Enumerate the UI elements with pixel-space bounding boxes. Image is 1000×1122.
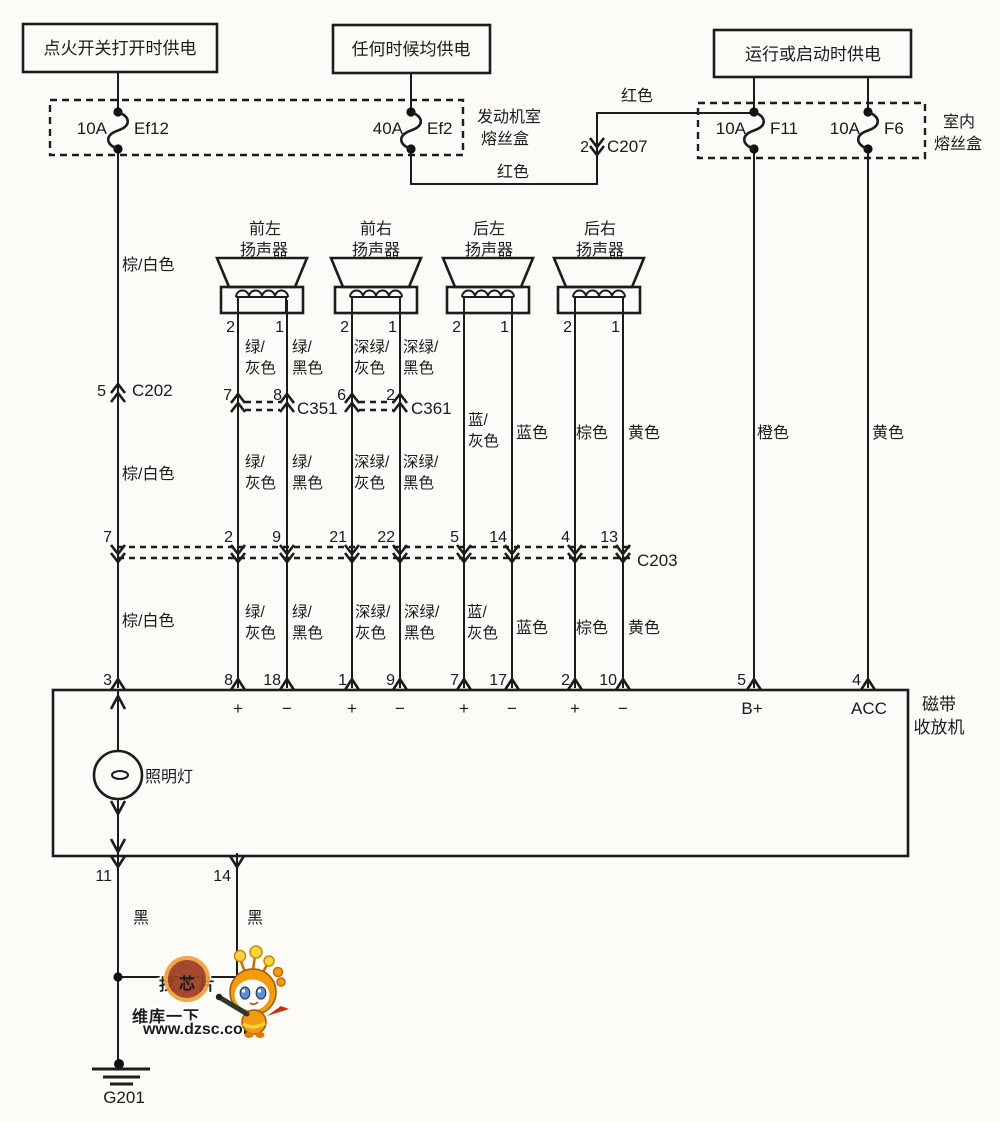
lamp-label: 照明灯 — [145, 768, 193, 786]
engine-fuse-box-label: 发动机室 — [477, 108, 541, 126]
polarity-sign: + — [570, 699, 580, 718]
c207-name: C207 — [607, 137, 648, 156]
polarity-sign: + — [459, 699, 469, 718]
watermark-url: www.dzsc.com — [142, 1021, 257, 1038]
fuse-name-ef2: Ef2 — [427, 119, 453, 138]
illumination-lamp: 照明灯 — [94, 696, 193, 852]
c203-pin: 13 — [600, 529, 618, 546]
wire-color-label: 棕色 — [576, 619, 608, 637]
speaker-pin: 1 — [500, 319, 509, 336]
c203-pin: 9 — [272, 529, 281, 546]
speaker-label2: 扬声器 — [576, 241, 624, 259]
wiring-diagram-page: 点火开关打开时供电 任何时候均供电 运行或启动时供电 发动机室 熔丝盒 室内 熔… — [0, 0, 1000, 1122]
speaker-icon — [331, 258, 421, 313]
wire-color-label: 黄色 — [628, 424, 660, 442]
unit-name: 磁带 — [922, 695, 956, 714]
wire-color-label: 绿/灰色 — [245, 453, 276, 492]
c203-pin: 7 — [103, 529, 112, 546]
fuse-name-f6: F6 — [884, 119, 904, 138]
polarity-sign: + — [347, 699, 357, 718]
interior-fuse-box-label: 室内 — [943, 113, 975, 131]
power-source-label-run-start: 运行或启动时供电 — [745, 45, 881, 64]
speaker-icon — [443, 258, 533, 313]
c361-pin: 2 — [386, 387, 395, 404]
c351-pin: 7 — [223, 387, 232, 404]
fuse-rating-ef2: 40A — [373, 119, 404, 138]
acc-label: ACC — [851, 699, 887, 718]
wire-color-label: 绿/黑色 — [292, 603, 323, 642]
wire-color-label: 蓝/灰色 — [467, 603, 498, 642]
unit-pin: 14 — [213, 868, 231, 885]
wire-color-rear-row: 蓝/灰色 蓝色 棕色 黄色 橙色 黄色 — [468, 411, 904, 450]
connector-c203: 7 2 9 21 22 5 14 4 13 C203 — [103, 529, 678, 570]
wire-color-label: 黄色 — [628, 619, 660, 637]
wire-color-label: 黑 — [247, 910, 263, 927]
wire-color-label: 绿/黑色 — [292, 453, 323, 492]
c207-pin: 2 — [580, 139, 589, 156]
speaker-label2: 扬声器 — [240, 241, 288, 259]
wire-color-red-lower: 红色 — [497, 163, 529, 181]
unit-pin: 3 — [103, 672, 112, 689]
fuse-icon-f11 — [744, 107, 764, 153]
fuse-rating-ef12: 10A — [77, 119, 108, 138]
polarity-sign: − — [507, 699, 517, 718]
wire-color-label: 深绿/灰色 — [355, 603, 391, 642]
fuse-rating-f11: 10A — [716, 119, 747, 138]
speaker-pin: 2 — [226, 319, 235, 336]
c203-pin: 2 — [224, 529, 233, 546]
fuse-rating-f6: 10A — [830, 119, 861, 138]
unit-pin: 18 — [263, 672, 281, 689]
ground-label: G201 — [103, 1088, 145, 1107]
power-source-boxes: 点火开关打开时供电 任何时候均供电 运行或启动时供电 — [23, 24, 911, 77]
speaker-label: 前左 — [249, 220, 281, 238]
c351-name: C351 — [297, 399, 338, 418]
connector-c207: 2 C207 — [580, 137, 648, 156]
c361-name: C361 — [411, 399, 452, 418]
unit-pin: 17 — [489, 672, 507, 689]
speaker-label: 后右 — [584, 220, 616, 238]
wire-color-label: 蓝/灰色 — [468, 411, 499, 450]
wire-color-label: 绿/黑色 — [292, 338, 323, 377]
speaker-label2: 扬声器 — [352, 241, 400, 259]
fuse-name-ef12: Ef12 — [134, 119, 169, 138]
speaker-icon — [217, 258, 307, 313]
speaker-icon — [554, 258, 644, 313]
polarity-sign: + — [233, 699, 243, 718]
c203-pin: 14 — [489, 529, 507, 546]
wire-color-label: 棕/白色 — [122, 256, 174, 274]
unit-pin: 4 — [852, 672, 861, 689]
wire-color-row1: 绿/灰色 绿/黑色 深绿/灰色 深绿/黑色 — [245, 338, 439, 377]
polarity-sign: − — [282, 699, 292, 718]
fuse-icon-f6 — [858, 107, 878, 153]
c203-name: C203 — [637, 551, 678, 570]
speaker-rear-left: 后左 扬声器 2 1 — [443, 220, 533, 336]
engine-fuse-box-label2: 熔丝盒 — [481, 130, 529, 148]
speaker-front-right: 前右 扬声器 2 1 — [331, 220, 421, 336]
speaker-pin: 2 — [563, 319, 572, 336]
unit-pin: 5 — [737, 672, 746, 689]
speaker-rear-right: 后右 扬声器 2 1 — [554, 220, 644, 336]
c203-pin: 22 — [377, 529, 395, 546]
speaker-front-left: 前左 扬声器 2 1 — [217, 220, 307, 336]
wire-color-label: 深绿/黑色 — [404, 603, 440, 642]
wire-color-label: 橙色 — [757, 424, 789, 442]
junction-dot — [113, 972, 122, 981]
connector-c361: 6 2 C361 — [337, 387, 452, 418]
c202-pin: 5 — [97, 383, 106, 400]
wire-color-label: 深绿/灰色 — [354, 453, 390, 492]
unit-pin: 7 — [450, 672, 459, 689]
wiring-diagram-canvas: 点火开关打开时供电 任何时候均供电 运行或启动时供电 发动机室 熔丝盒 室内 熔… — [0, 0, 1000, 1122]
wire-color-label: 棕/白色 — [122, 465, 174, 483]
wire-color-label: 深绿/黑色 — [403, 338, 439, 377]
c203-pin: 4 — [561, 529, 570, 546]
polarity-sign: − — [618, 699, 628, 718]
c351-pin: 8 — [273, 387, 282, 404]
speaker-pin: 2 — [452, 319, 461, 336]
c361-pin: 6 — [337, 387, 346, 404]
wire-color-row2: 绿/灰色 绿/黑色 深绿/灰色 深绿/黑色 — [245, 453, 439, 492]
connector-c351: 7 8 C351 — [223, 387, 338, 418]
speaker-label2: 扬声器 — [465, 241, 513, 259]
speaker-pin: 1 — [611, 319, 620, 336]
wire-color-label: 棕/白色 — [122, 612, 174, 630]
wire-color-label: 黑 — [133, 910, 149, 927]
polarity-sign: − — [395, 699, 405, 718]
unit-pin: 9 — [386, 672, 395, 689]
unit-pin: 8 — [224, 672, 233, 689]
speaker-pin: 1 — [388, 319, 397, 336]
wire-color-label: 绿/灰色 — [245, 603, 276, 642]
unit-pin: 11 — [95, 868, 112, 885]
unit-name2: 收放机 — [914, 718, 965, 737]
unit-pin: 2 — [561, 672, 570, 689]
speaker-pin: 2 — [340, 319, 349, 336]
watermark: 找芯片 芯 维库一下 www.dzsc.com — [132, 946, 289, 1038]
wire-color-label: 绿/灰色 — [245, 338, 276, 377]
fuse-icon-ef12 — [108, 107, 128, 153]
wire-color-label: 深绿/灰色 — [354, 338, 390, 377]
b-plus-label: B+ — [741, 699, 762, 718]
fuse-icon-ef2 — [401, 107, 421, 153]
tape-player-unit: 3 8 18 1 9 7 17 2 10 5 4 + − + − + − + −… — [53, 672, 965, 885]
wire-color-label: 棕色 — [576, 424, 608, 442]
speaker-label: 后左 — [473, 220, 505, 238]
unit-pin: 1 — [338, 672, 347, 689]
fuse-name-f11: F11 — [770, 119, 798, 138]
wire-color-label: 蓝色 — [516, 619, 548, 637]
power-source-label-always: 任何时候均供电 — [352, 40, 471, 59]
c203-pin: 21 — [329, 529, 347, 546]
c202-name: C202 — [132, 381, 173, 400]
wire-color-row3: 绿/灰色 绿/黑色 深绿/灰色 深绿/黑色 蓝/灰色 蓝色 棕色 黄色 — [245, 603, 660, 642]
unit-pin: 10 — [599, 672, 617, 689]
wire-color-label: 黄色 — [872, 424, 904, 442]
watermark-magnifier-char: 芯 — [179, 974, 195, 993]
wire-color-red-upper: 红色 — [621, 87, 653, 105]
wire-color-label: 蓝色 — [516, 424, 548, 442]
lamp-icon — [94, 751, 142, 799]
speaker-pin: 1 — [275, 319, 284, 336]
connector-c202: 5 C202 — [97, 381, 173, 402]
lamp-filament-icon — [112, 771, 128, 779]
c203-pin: 5 — [450, 529, 459, 546]
ground-icon — [92, 1069, 150, 1084]
power-source-label-ignition: 点火开关打开时供电 — [44, 39, 197, 58]
speaker-label: 前右 — [360, 220, 392, 238]
wire-color-label: 深绿/黑色 — [403, 453, 439, 492]
interior-fuse-box-label2: 熔丝盒 — [934, 135, 982, 153]
